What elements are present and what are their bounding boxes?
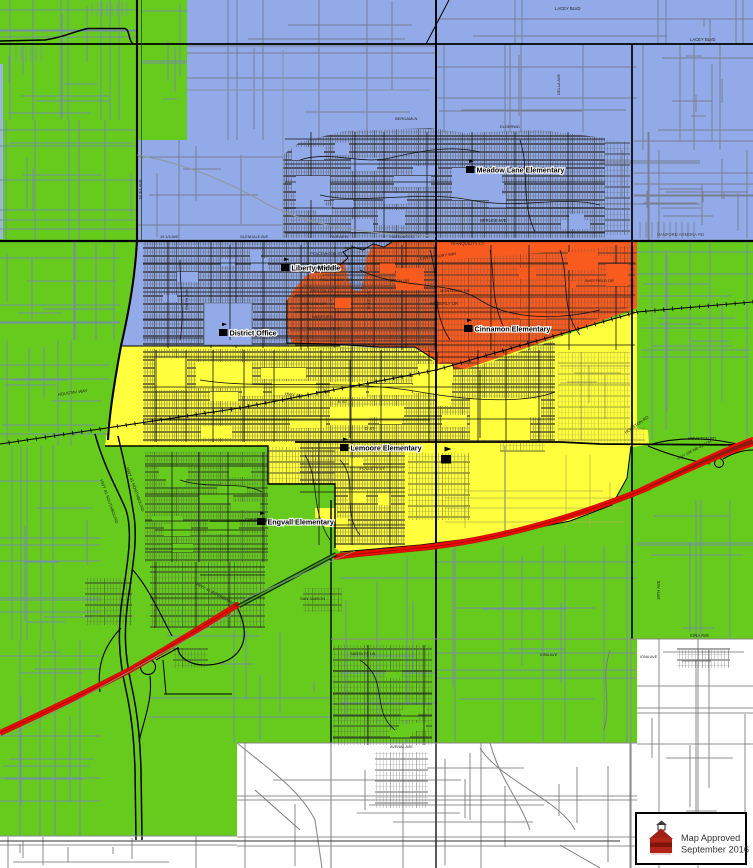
svg-text:19 1/2 AVE: 19 1/2 AVE (366, 290, 371, 310)
svg-text:IONA AVE: IONA AVE (690, 633, 709, 638)
svg-text:Engvall Elementary: Engvall Elementary (268, 517, 334, 526)
svg-text:19 1/4 AVE: 19 1/4 AVE (160, 235, 179, 239)
svg-text:SHEFFIELD DR: SHEFFIELD DR (314, 265, 343, 270)
svg-text:AVENAL AVE: AVENAL AVE (390, 745, 413, 749)
svg-text:HOUSTON RD: HOUSTON RD (688, 436, 716, 441)
svg-text:19TH AVE: 19TH AVE (656, 581, 661, 600)
svg-text:LACEY BLVD: LACEY BLVD (690, 37, 715, 42)
svg-text:PEACEWOOD ST: PEACEWOOD ST (310, 251, 343, 256)
svg-text:OXFORD DR: OXFORD DR (302, 301, 326, 306)
svg-text:SMITH AVE: SMITH AVE (184, 289, 189, 310)
svg-text:BERGAMLN: BERGAMLN (395, 116, 418, 121)
svg-text:ELDERWD: ELDERWD (500, 124, 520, 129)
svg-text:KIMBERLY DR: KIMBERLY DR (430, 301, 458, 306)
svg-text:IONA AVE: IONA AVE (540, 653, 558, 657)
svg-text:HANFORD ARMONA RD: HANFORD ARMONA RD (657, 232, 704, 237)
svg-text:BRISTOL CT: BRISTOL CT (310, 288, 334, 293)
svg-text:DEVON DR: DEVON DR (388, 278, 409, 283)
svg-text:D ST: D ST (365, 426, 375, 431)
svg-text:SANTA FE LN: SANTA FE LN (350, 651, 375, 656)
svg-text:Cinnamon Elementary: Cinnamon Elementary (475, 324, 551, 333)
svg-text:FAIRVIEW: FAIRVIEW (330, 235, 348, 239)
svg-text:Map Approved: Map Approved (681, 833, 740, 843)
svg-text:CHERRY LN: CHERRY LN (245, 517, 269, 522)
svg-text:SAN SIMEON: SAN SIMEON (300, 596, 325, 601)
svg-text:FALLENLEAF DR: FALLENLEAF DR (320, 277, 352, 282)
svg-text:MONTEREY DR: MONTEREY DR (440, 288, 470, 293)
svg-text:WOODBRIDGE CT: WOODBRIDGE CT (308, 326, 343, 331)
svg-text:FOLLETT ST: FOLLETT ST (360, 466, 385, 471)
svg-text:WEDFORD: WEDFORD (312, 314, 333, 319)
svg-text:SPRUCE AVE: SPRUCE AVE (480, 218, 507, 223)
svg-text:19 3/4 AVE: 19 3/4 AVE (138, 179, 143, 200)
svg-text:Lemoore Elementary: Lemoore Elementary (351, 443, 422, 452)
svg-text:E ST: E ST (338, 399, 348, 404)
svg-text:HAZELWOOD: HAZELWOOD (390, 235, 414, 239)
svg-text:Meadow Lane Elementary: Meadow Lane Elementary (477, 165, 565, 174)
svg-text:DELLA AVE: DELLA AVE (556, 74, 561, 95)
svg-text:September 2016: September 2016 (681, 845, 749, 855)
svg-text:GLENDALE AVE: GLENDALE AVE (240, 235, 269, 239)
svg-text:IONA AVE: IONA AVE (640, 655, 658, 659)
svg-text:District Office: District Office (230, 328, 277, 337)
svg-text:SHEFFIELD DR: SHEFFIELD DR (585, 278, 614, 283)
svg-text:TRANQUILITY CT: TRANQUILITY CT (450, 241, 485, 246)
svg-text:LACEY BLVD: LACEY BLVD (555, 6, 580, 11)
